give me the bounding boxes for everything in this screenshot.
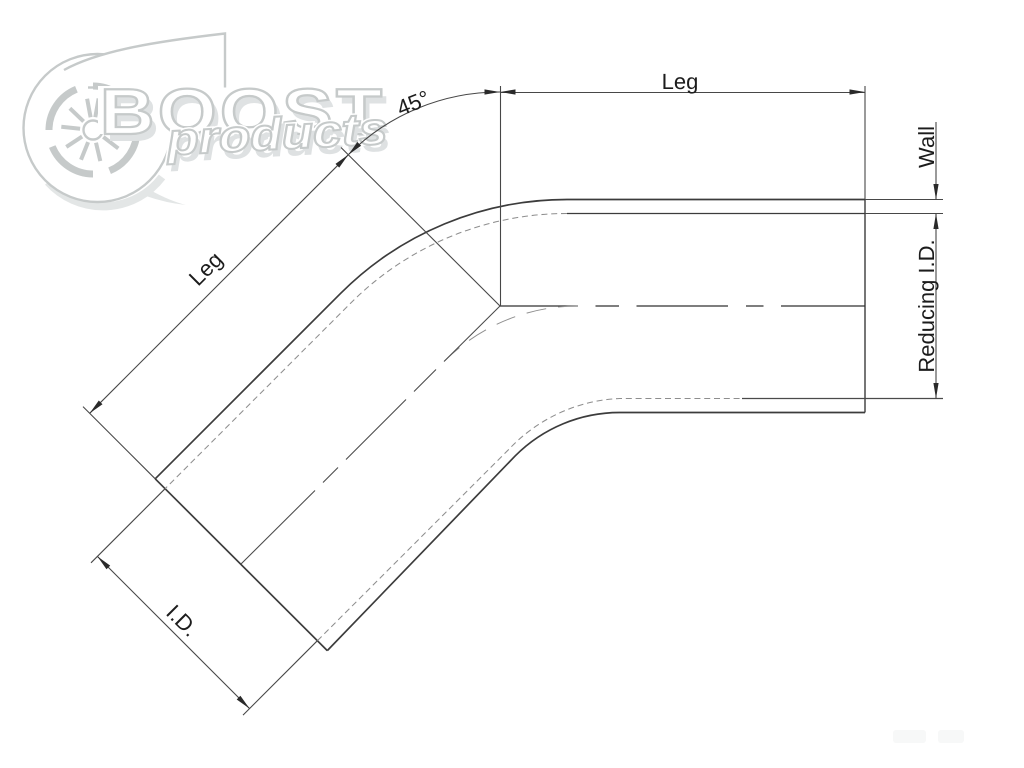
svg-text:Wall: Wall bbox=[914, 126, 939, 168]
svg-text:Leg: Leg bbox=[662, 69, 699, 94]
svg-text:I.D.: I.D. bbox=[161, 600, 203, 642]
svg-text:Leg: Leg bbox=[184, 247, 228, 291]
svg-text:45°: 45° bbox=[393, 85, 433, 121]
svg-text:Reducing I.D.: Reducing I.D. bbox=[914, 239, 939, 372]
